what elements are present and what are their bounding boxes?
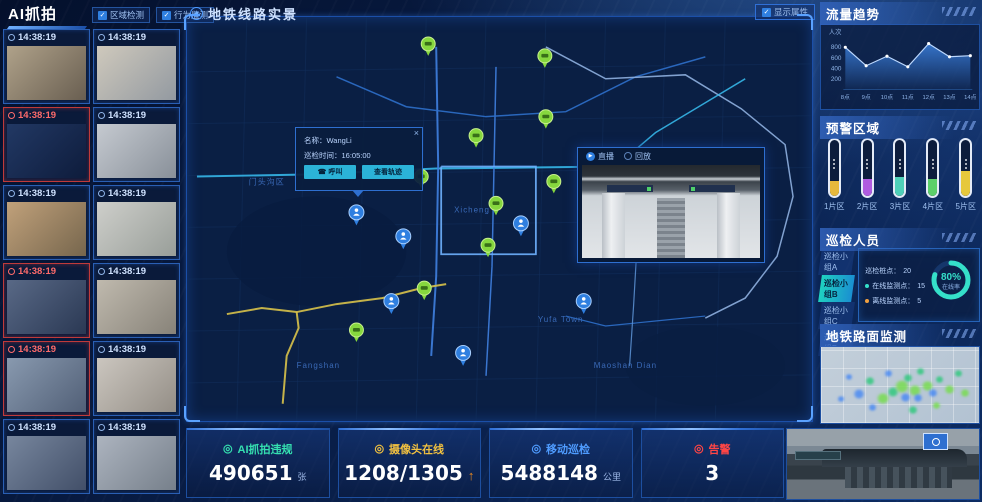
snapshot-grid: 14:38:1914:38:1914:38:1914:38:1914:38:19… — [3, 29, 183, 494]
svg-text:Xicheng: Xicheng — [454, 205, 490, 214]
warning-gauge-2: 2片区 — [857, 138, 877, 222]
view-track-button[interactable]: 查看轨迹 — [362, 165, 414, 179]
camera-snapshot[interactable]: 14:38:19 — [93, 341, 180, 416]
camera-snapshot[interactable]: 14:38:19 — [3, 263, 90, 338]
gauge-ticks — [899, 159, 901, 161]
heat-blob — [913, 394, 923, 402]
patrol-piles: 巡检桩点：20 — [865, 266, 925, 276]
stat-card-cameras-online: ◎摄像头在线1208/1305↑ — [338, 428, 482, 498]
close-icon[interactable]: × — [414, 128, 419, 138]
stat-label-row: ◎摄像头在线 — [374, 441, 444, 457]
warning-gauge-5: 5片区 — [956, 138, 976, 222]
svg-text:80%: 80% — [941, 272, 961, 283]
svg-text:在线率: 在线率 — [942, 283, 960, 291]
snapshot-timestamp: 14:38:19 — [108, 188, 146, 199]
clock-icon — [8, 190, 15, 197]
stat-label-row: ◎AI抓拍违规 — [223, 441, 293, 457]
clock-icon — [98, 190, 105, 197]
stat-label-row: ◎移动巡检 — [531, 441, 590, 457]
snapshot-image — [97, 358, 176, 412]
heat-blob — [932, 402, 941, 409]
svg-text:600: 600 — [831, 55, 842, 62]
snapshot-header: 14:38:19 — [4, 342, 89, 357]
gauge-tube — [926, 138, 939, 198]
camera-snapshot[interactable]: 14:38:19 — [93, 419, 180, 494]
camera-snapshot[interactable]: 14:38:19 — [3, 29, 90, 104]
gauge-ticks — [833, 159, 835, 161]
svg-text:Yufa Town: Yufa Town — [538, 315, 584, 324]
snapshot-timestamp: 14:38:19 — [18, 266, 56, 277]
snapshot-image — [7, 280, 86, 334]
svg-text:14点: 14点 — [964, 93, 977, 101]
svg-text:400: 400 — [831, 65, 842, 72]
heat-blob — [908, 406, 918, 414]
snapshot-image — [7, 358, 86, 412]
heat-blob — [903, 374, 913, 382]
stat-card-mobile-patrol: ◎移动巡检5488148公里 — [489, 428, 633, 498]
svg-text:8点: 8点 — [841, 93, 850, 101]
target-icon: ◎ — [374, 444, 384, 455]
snapshot-timestamp: 14:38:19 — [18, 344, 56, 355]
stat-value: 5488148 — [501, 461, 598, 485]
stat-label: 摄像头在线 — [389, 441, 444, 457]
heat-blob — [865, 377, 875, 385]
gauge-fill — [928, 179, 937, 196]
heat-blob — [916, 368, 925, 375]
snapshot-header: 14:38:19 — [94, 186, 179, 201]
popup-time-line: 巡检时间：16:05:00 — [304, 150, 414, 161]
gauge-fill — [830, 181, 839, 196]
heat-blob — [853, 389, 865, 399]
gauge-label: 5片区 — [956, 201, 976, 212]
snapshot-header: 14:38:19 — [94, 264, 179, 279]
patrol-person-pin[interactable] — [576, 294, 591, 314]
station-pin[interactable] — [421, 37, 435, 56]
clock-icon — [8, 112, 15, 119]
group-label: 巡检小组B — [824, 278, 849, 300]
warning-gauge-4: 4片区 — [923, 138, 943, 222]
svg-text:人次: 人次 — [829, 27, 842, 36]
snapshot-header: 14:38:19 — [4, 420, 89, 435]
snapshot-timestamp: 14:38:19 — [108, 32, 146, 43]
dashboard: AI抓拍 ✓区域检测✓行为监测 14:38:1914:38:1914:38:19… — [0, 0, 982, 502]
warning-gauges: 1片区2片区3片区4片区5片区 — [820, 138, 980, 222]
target-icon: ◎ — [694, 444, 704, 455]
station-pin[interactable] — [489, 196, 503, 215]
snapshot-image — [97, 124, 176, 178]
entrance-gate — [845, 467, 953, 488]
svg-text:10点: 10点 — [881, 93, 894, 101]
traffic-trend-title: 流量趋势 — [820, 2, 978, 25]
clock-icon — [98, 112, 105, 119]
entrance-canopy — [822, 449, 968, 467]
patrol-person-pin[interactable] — [384, 294, 399, 314]
target-icon: ◎ — [223, 444, 233, 455]
heat-blob — [935, 376, 944, 383]
traffic-trend-chart: 人次8006004002008点9点10点11点12点13点14点 — [820, 24, 980, 110]
popup-name-line: 名称：WangLi — [304, 135, 414, 146]
patrol-group-list: 巡检小组A巡检小组B巡检小组C巡检小组D — [820, 248, 853, 322]
camera-snapshot[interactable]: 14:38:19 — [3, 341, 90, 416]
group-label: 巡检小组A — [824, 251, 849, 273]
metro-logo-sign — [923, 433, 948, 450]
svg-text:200: 200 — [831, 76, 842, 83]
target-icon: ◎ — [531, 444, 541, 455]
patrol-person-pin[interactable] — [456, 345, 471, 365]
road-heatmap — [820, 346, 980, 424]
gauge-ticks — [866, 159, 868, 161]
station-sign-left — [607, 185, 653, 192]
stat-unit: 公里 — [603, 470, 621, 483]
gauge-fill — [961, 171, 970, 196]
snapshot-timestamp: 14:38:19 — [18, 188, 56, 199]
gauge-fill — [895, 177, 904, 196]
stats-bar: ◎AI抓拍违规490651张◎摄像头在线1208/1305↑◎移动巡检54881… — [186, 428, 784, 498]
map-header: ◉ 地铁线路实景 — [190, 4, 298, 23]
page-title: AI抓拍 — [8, 3, 86, 24]
snapshot-timestamp: 14:38:19 — [108, 344, 146, 355]
station-sign-right — [689, 185, 735, 192]
stat-value-row: 1208/1305↑ — [344, 461, 474, 485]
video-mode-switch: ▶ 直播 回放 — [578, 148, 764, 164]
snapshot-timestamp: 14:38:19 — [108, 266, 146, 277]
snapshot-image — [7, 202, 86, 256]
clock-icon — [8, 424, 15, 431]
camera-snapshot[interactable]: 14:38:19 — [93, 185, 180, 260]
checkbox-icon[interactable]: ✓ — [762, 8, 771, 17]
heat-blob — [928, 389, 938, 397]
gauge-ticks — [932, 159, 934, 161]
station-pin[interactable] — [539, 110, 553, 129]
snapshot-image — [97, 202, 176, 256]
area-chart: 人次8006004002008点9点10点11点12点13点14点 — [821, 25, 979, 109]
svg-text:12点: 12点 — [922, 93, 935, 101]
heat-blob — [960, 389, 970, 397]
snapshot-image — [7, 124, 86, 178]
gauge-tube — [893, 138, 906, 198]
map-title: 地铁线路实景 — [208, 4, 298, 23]
snapshot-header: 14:38:19 — [4, 186, 89, 201]
stat-value-row: 5488148公里 — [501, 461, 621, 485]
station-video-feed — [582, 165, 760, 258]
checkbox-icon[interactable]: ✓ — [98, 11, 107, 20]
station-pin[interactable] — [469, 129, 483, 148]
gauge-tube — [959, 138, 972, 198]
frame-corner — [184, 406, 200, 422]
stat-card-alerts: ◎告警3 — [641, 428, 785, 498]
stat-unit: ↑ — [468, 468, 475, 483]
left-panel-header: AI抓拍 — [8, 3, 86, 29]
stat-value: 490651 — [209, 461, 293, 485]
heat-blob — [884, 370, 893, 377]
clock-icon — [98, 424, 105, 431]
snapshot-image — [97, 280, 176, 334]
snapshot-image — [7, 46, 86, 100]
warning-gauge-1: 1片区 — [824, 138, 844, 222]
offline-bullet-icon — [865, 299, 869, 303]
gauge-label: 4片区 — [923, 201, 943, 212]
snapshot-header: 14:38:19 — [94, 108, 179, 123]
gauge-fill — [863, 179, 872, 196]
online-bullet-icon — [865, 284, 869, 288]
snapshot-timestamp: 14:38:19 — [18, 110, 56, 121]
patrol-section: 巡检小组A巡检小组B巡检小组C巡检小组D 巡检桩点：20 在线监测点：15 离线… — [820, 248, 980, 322]
svg-text:门头沟区: 门头沟区 — [249, 176, 285, 186]
camera-snapshot[interactable]: 14:38:19 — [3, 185, 90, 260]
snapshot-header: 14:38:19 — [94, 342, 179, 357]
snapshot-header: 14:38:19 — [4, 108, 89, 123]
call-button[interactable]: ☎ 呼叫 — [304, 165, 356, 179]
stat-label-row: ◎告警 — [694, 441, 731, 457]
clock-icon — [98, 346, 105, 353]
stat-value-row: 490651张 — [209, 461, 307, 485]
snapshot-header: 14:38:19 — [94, 30, 179, 45]
clock-icon — [98, 34, 105, 41]
stat-label: AI抓拍违规 — [238, 441, 293, 457]
station-pin[interactable] — [349, 323, 363, 342]
play-icon: ▶ — [586, 152, 595, 161]
station-video-panel[interactable]: ▶ 直播 回放 — [577, 147, 765, 263]
replay-option[interactable]: 回放 — [624, 151, 651, 162]
station-pillar — [602, 193, 625, 258]
entrance-banner — [795, 451, 841, 459]
patrol-stats-panel: 巡检桩点：20 在线监测点：15 离线监测点：5 80%在线率 — [858, 248, 980, 322]
radio-icon — [624, 152, 632, 160]
patrol-popup: × 名称：WangLi 巡检时间：16:05:00 ☎ 呼叫 查看轨迹 — [295, 127, 423, 191]
gauge-label: 3片区 — [890, 201, 910, 212]
station-pin[interactable] — [538, 49, 552, 68]
clock-icon — [8, 34, 15, 41]
live-option[interactable]: ▶ 直播 — [586, 151, 614, 162]
warning-gauge-3: 3片区 — [890, 138, 910, 222]
camera-snapshot[interactable]: 14:38:19 — [93, 263, 180, 338]
clock-icon — [8, 268, 15, 275]
filter-1[interactable]: ✓区域检测 — [92, 7, 150, 23]
gauge-label: 1片区 — [824, 201, 844, 212]
svg-text:Fangshan: Fangshan — [297, 361, 340, 370]
stat-unit: 张 — [297, 470, 306, 483]
heat-blob — [845, 374, 853, 380]
clock-icon — [8, 346, 15, 353]
patrol-group-b[interactable]: 巡检小组B — [818, 275, 855, 302]
clock-icon — [98, 268, 105, 275]
heat-blob — [944, 385, 955, 394]
snapshot-timestamp: 14:38:19 — [18, 422, 56, 433]
snapshot-timestamp: 14:38:19 — [18, 32, 56, 43]
frame-corner — [797, 14, 813, 30]
stat-label: 移动巡检 — [546, 441, 590, 457]
svg-text:13点: 13点 — [943, 93, 956, 101]
station-pillar — [717, 193, 740, 258]
patrol-personnel-title: 巡检人员 — [820, 228, 978, 251]
stat-card-ai-violations: ◎AI抓拍违规490651张 — [186, 428, 330, 498]
frame-corner — [184, 14, 200, 30]
station-entrance-photo — [786, 428, 980, 500]
camera-snapshot[interactable]: 14:38:19 — [93, 29, 180, 104]
camera-snapshot[interactable]: 14:38:19 — [3, 107, 90, 182]
snapshot-header: 14:38:19 — [4, 30, 89, 45]
frame-corner — [797, 406, 813, 422]
escalator — [657, 198, 686, 258]
camera-snapshot[interactable]: 14:38:19 — [93, 107, 180, 182]
title-underline — [7, 26, 87, 29]
snapshot-image — [97, 46, 176, 100]
checkbox-icon[interactable]: ✓ — [162, 11, 171, 20]
gauge-tube — [861, 138, 874, 198]
svg-text:11点: 11点 — [902, 93, 914, 101]
snapshot-header: 14:38:19 — [94, 420, 179, 435]
svg-text:800: 800 — [831, 44, 842, 51]
gauge-tube — [828, 138, 841, 198]
snapshot-timestamp: 14:38:19 — [108, 110, 146, 121]
stat-value-row: 3 — [705, 461, 719, 485]
filter-label: 区域检测 — [110, 9, 144, 21]
warning-areas-title: 预警区域 — [820, 116, 978, 139]
patrol-online: 在线监测点：15 — [865, 281, 925, 291]
camera-snapshot[interactable]: 14:38:19 — [3, 419, 90, 494]
online-rate-donut: 80%在线率 — [927, 258, 975, 314]
stat-value: 3 — [705, 461, 719, 485]
gauge-ticks — [965, 159, 967, 161]
stat-value: 1208/1305 — [344, 461, 463, 485]
road-monitor-title: 地铁路面监测 — [820, 324, 978, 347]
patrol-person-pin[interactable] — [513, 216, 528, 236]
svg-text:Maoshan Dian: Maoshan Dian — [594, 361, 657, 370]
patrol-offline: 离线监测点：5 — [865, 296, 925, 306]
snapshot-header: 14:38:19 — [4, 264, 89, 279]
heat-blob — [954, 370, 963, 377]
station-pin[interactable] — [547, 174, 561, 193]
snapshot-image — [7, 436, 86, 490]
patrol-group-a[interactable]: 巡检小组A — [818, 248, 855, 275]
gauge-label: 2片区 — [857, 201, 877, 212]
stat-label: 告警 — [709, 441, 731, 457]
snapshot-timestamp: 14:38:19 — [108, 422, 146, 433]
heat-blob — [837, 396, 845, 402]
metro-map[interactable]: 门头沟区XichengFangshanYufa TownMaoshan Dian… — [186, 16, 813, 422]
svg-text:9点: 9点 — [862, 93, 871, 101]
heat-blob — [868, 404, 877, 411]
snapshot-image — [97, 436, 176, 490]
